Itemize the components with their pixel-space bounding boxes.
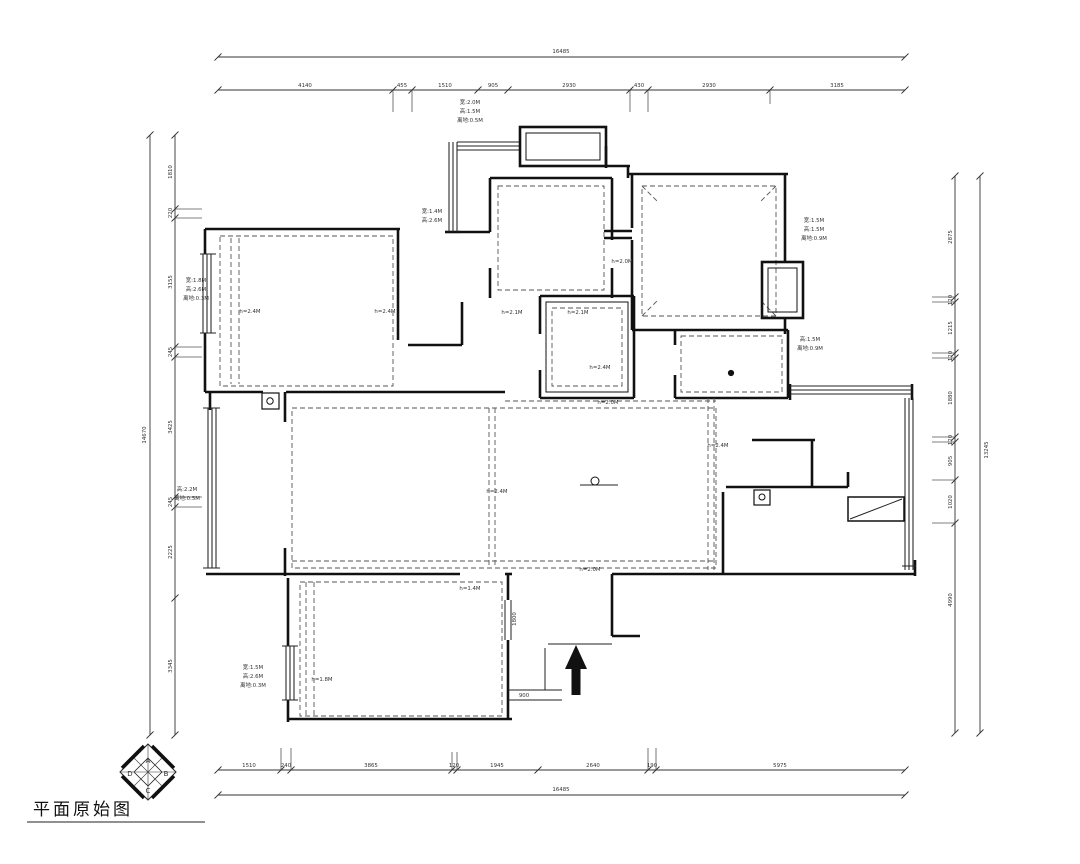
structure-rect (768, 268, 797, 312)
dimension-label: 240 (281, 763, 292, 769)
annotation-text: h=2.4M (486, 489, 508, 495)
annotation-text: h=2.4M (589, 365, 611, 371)
dimension-label: 1880 (948, 391, 954, 405)
dimension-label: 120 (948, 350, 954, 361)
dimension-label: 190 (647, 763, 658, 769)
dimension-label: 3425 (168, 420, 174, 434)
annotation-text: 高:1.5M (460, 107, 481, 115)
annotation-text: h=2.1M (501, 310, 523, 316)
annotation-text: h=2.4M (374, 309, 396, 315)
annotation-text: h=2.4M (707, 443, 729, 449)
dimension-label: 3345 (168, 659, 174, 673)
ceiling-dot (728, 370, 733, 375)
floor-plan-svg: 宽:2.0M高:1.5M离地:0.5M宽:1.4M高:2.6M宽:1.5M高:1… (0, 0, 1080, 864)
annotation-text: 高:2.6M (243, 672, 264, 680)
dimension-label: 1510 (438, 83, 452, 89)
dimension-label: 3865 (364, 763, 378, 769)
dimension-label: 220 (168, 207, 174, 218)
annotation-text: 1800 (512, 612, 518, 626)
ceiling-dash-rect (292, 408, 716, 568)
dimension-label: 2640 (586, 763, 600, 769)
flue-circle (267, 398, 273, 404)
annotation-text: h=2.4M (239, 309, 261, 315)
structure-rect (754, 490, 770, 505)
annotation-text: 离地:0.3M (240, 681, 266, 689)
ceiling-dash-rect (498, 186, 604, 290)
annotation-text: 离地:0.5M (457, 116, 483, 124)
annotation-text: 离地:0.5M (174, 494, 200, 502)
annotation-text: 900 (519, 693, 530, 699)
annotation-text: 高:2.6M (422, 216, 443, 224)
annotation-text: 宽:1.8M (186, 276, 207, 284)
dimension-label: 1510 (242, 763, 256, 769)
annotation-text: B (164, 770, 169, 778)
annotation-text: 宽:1.5M (243, 663, 264, 671)
ceiling-dash-rect (300, 582, 502, 716)
dimension-label: 2930 (562, 83, 576, 89)
annotation-text: A (146, 757, 151, 765)
dimension-label: 4140 (298, 83, 312, 89)
dimension-label: 14670 (142, 426, 148, 444)
dimension-label: 16485 (552, 49, 569, 55)
structure-rect (526, 133, 600, 160)
drawing-title: 平面原始图 (33, 795, 133, 820)
annotation-text: h=2.0M (579, 567, 601, 573)
ceiling-dash-line (642, 186, 658, 202)
annotation-text: C (146, 787, 151, 795)
detail-line (850, 499, 902, 519)
flue-circle (591, 477, 599, 485)
dimension-label: 16485 (552, 787, 569, 793)
annotation-text: 高:1.5M (800, 335, 821, 343)
structure-rect (262, 393, 279, 409)
dimension-label: 3185 (830, 83, 844, 89)
dimension-label: 2225 (168, 545, 174, 559)
annotation-text: 宽:1.4M (422, 207, 443, 215)
dimension-label: 2930 (702, 83, 716, 89)
annotation-text: 宽:2.0M (460, 98, 481, 106)
annotation-text: 离地:0.9M (797, 344, 823, 352)
ceiling-dash-rect (642, 186, 776, 316)
dimension-label: 13245 (984, 441, 990, 458)
annotation-text: 宽:1.5M (804, 216, 825, 224)
annotation-text: 高:1.5M (804, 225, 825, 233)
annotation-text: 高:2.2M (177, 485, 198, 493)
dimension-label: 1945 (490, 763, 504, 769)
dimension-label: 120 (948, 294, 954, 305)
annotation-text: h=1.8M (311, 677, 333, 683)
dimension-label: 2875 (948, 230, 954, 244)
entry-arrow (565, 645, 587, 695)
dimension-label: 245 (168, 347, 174, 357)
annotation-text: h=1.4M (459, 586, 481, 592)
annotation-text: h=2.0M (611, 259, 633, 265)
annotation-text: 离地:0.3M (183, 294, 209, 302)
dimension-label: 455 (397, 83, 407, 89)
annotation-text: h=2.0M (597, 400, 619, 406)
dimension-label: 3155 (168, 275, 174, 289)
dimension-label: 245 (168, 497, 174, 507)
floor-plan-page: 宽:2.0M高:1.5M离地:0.5M宽:1.4M高:2.6M宽:1.5M高:1… (0, 0, 1080, 864)
dimension-label: 905 (488, 83, 498, 89)
annotation-text: 离地:0.9M (801, 234, 827, 242)
dimension-label: 120 (948, 434, 954, 445)
ceiling-dash-rect (552, 308, 622, 386)
dimension-label: 905 (948, 456, 954, 466)
ceiling-dash-rect (681, 336, 782, 392)
dimension-label: 1810 (168, 165, 174, 179)
annotation-text: D (127, 770, 132, 778)
ceiling-dash-line (642, 300, 658, 316)
annotation-text: h=2.1M (567, 310, 589, 316)
flue-circle (759, 494, 765, 500)
dimension-label: 120 (449, 763, 460, 769)
dimension-label: 4990 (948, 593, 954, 607)
dimension-label: 1020 (948, 495, 954, 509)
ceiling-dash-line (760, 186, 776, 202)
dimension-label: 5975 (773, 763, 787, 769)
annotation-text: 高:2.6M (186, 285, 207, 293)
dimension-label: 1215 (948, 321, 954, 335)
dimension-label: 430 (634, 83, 645, 89)
